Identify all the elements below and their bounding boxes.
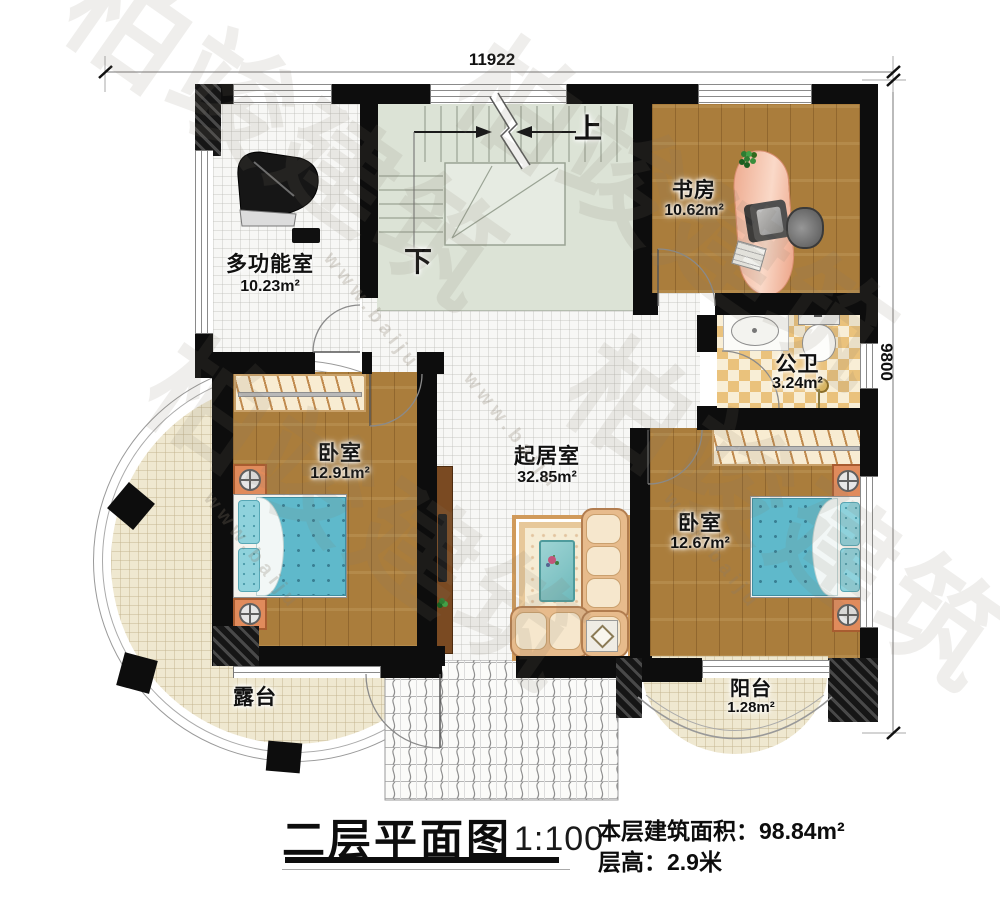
pillow <box>238 548 260 592</box>
lamp-icon <box>239 469 261 491</box>
pillow <box>840 548 860 592</box>
balcony-pier <box>828 658 878 722</box>
dimension-top: 11922 <box>440 50 544 70</box>
title-underline-thick <box>285 857 559 863</box>
room-label-balcony: 阳台 <box>701 679 801 700</box>
corner-pier <box>213 626 259 666</box>
floor-height-label: 层高： <box>598 849 667 875</box>
lamp-icon <box>837 470 859 492</box>
room-area-bathroom: 3.24m² <box>745 376 850 393</box>
room-label-study: 书房 <box>634 180 754 202</box>
floor-area-value: 98.84m² <box>759 818 845 844</box>
room-area-living: 32.85m² <box>487 470 607 487</box>
window <box>195 150 213 334</box>
room-area-study: 10.62m² <box>634 203 754 220</box>
room-area-bedroom-left: 12.91m² <box>280 466 400 483</box>
sink-drain <box>752 328 757 333</box>
wall <box>362 352 372 374</box>
tv-icon <box>438 514 447 582</box>
desk-chair <box>786 207 824 249</box>
drawing-scale: 1:100 <box>514 820 604 859</box>
room-label-living: 起居室 <box>487 446 607 468</box>
wall <box>697 315 717 352</box>
floor-area-line: 本层建筑面积：98.84m² <box>598 812 845 846</box>
room-label-bedroom-left: 卧室 <box>280 443 400 465</box>
room-area-balcony: 1.28m² <box>701 700 801 716</box>
coffee-table-flowers <box>548 556 556 564</box>
pillow <box>840 502 860 546</box>
wall <box>212 352 233 660</box>
window <box>430 84 567 104</box>
wall <box>360 84 378 298</box>
floor-area-label: 本层建筑面积： <box>598 818 759 844</box>
lamp-icon <box>837 604 859 626</box>
wall <box>417 352 437 664</box>
room-label-multi: 多功能室 <box>190 254 350 276</box>
wall <box>652 293 658 315</box>
wardrobe-rail <box>716 446 860 451</box>
coffee-table <box>539 540 575 602</box>
floor-plan-canvas: 多功能室 10.23m² 书房 10.62m² 公卫 3.24m² 卧室 12.… <box>0 0 1000 914</box>
sofa-cushion <box>586 578 621 608</box>
wall <box>630 428 650 682</box>
sofa-cushion <box>515 612 547 650</box>
window <box>698 84 812 104</box>
lamp-icon <box>239 603 261 625</box>
wall <box>715 293 878 315</box>
plant-icon <box>439 598 445 604</box>
grand-piano <box>228 140 324 244</box>
balcony-pier <box>616 658 642 718</box>
title-underline-thin <box>282 869 570 870</box>
terrace-column <box>266 741 302 774</box>
wall <box>377 656 442 678</box>
room-label-terrace: 露台 <box>205 687 305 709</box>
sofa-cushion <box>549 612 581 650</box>
pillow <box>238 500 260 544</box>
sofa-cushion <box>586 514 621 544</box>
corner-pier <box>195 84 221 156</box>
sofa-cushion <box>586 546 621 576</box>
monitor-screen <box>756 206 784 235</box>
room-area-bedroom-right: 12.67m² <box>640 536 760 553</box>
wardrobe-right <box>712 428 864 466</box>
plant-icon <box>744 156 750 162</box>
wall <box>700 408 878 430</box>
room-label-bedroom-right: 卧室 <box>640 513 760 535</box>
floor-height-line: 层高：2.9米 <box>598 843 722 877</box>
wardrobe-left <box>234 374 366 412</box>
window <box>233 84 332 104</box>
stair-up-label: 上 <box>568 114 608 143</box>
terrace-sill <box>233 666 381 678</box>
room-area-multi: 10.23m² <box>190 279 350 296</box>
window <box>860 476 878 628</box>
balcony-sill <box>702 660 830 678</box>
floor-height-value: 2.9米 <box>667 849 722 875</box>
stair-down-label: 下 <box>398 247 438 276</box>
room-label-bathroom: 公卫 <box>745 354 850 376</box>
wardrobe-rail <box>238 392 362 397</box>
dimension-right: 9800 <box>876 332 896 392</box>
nightstand <box>233 464 267 496</box>
